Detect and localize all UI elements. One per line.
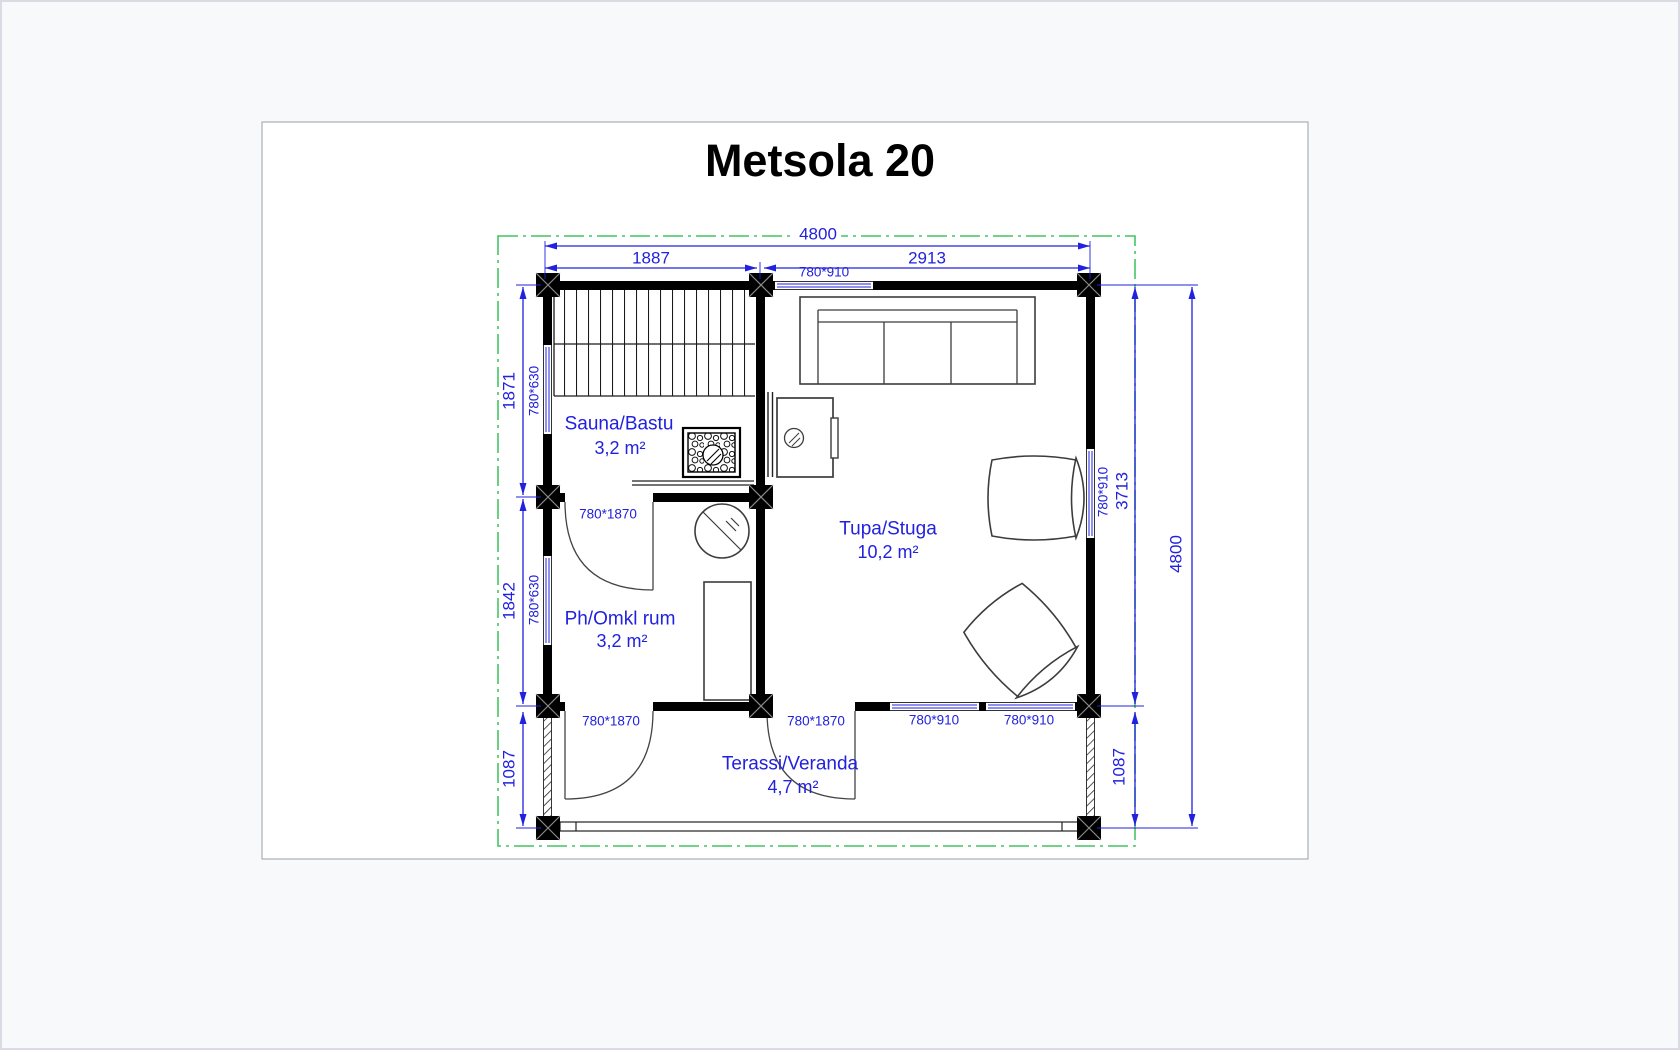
- dim-sauna-depth: 1871: [501, 372, 518, 410]
- dim-terrace-depth-right: 1087: [1111, 748, 1128, 786]
- floor-plan-sheet: Metsola 20 4800 1887 2913 780*910 1871 7…: [0, 0, 1680, 1050]
- label-sauna-door: 780*1870: [579, 507, 637, 521]
- plan-title: Metsola 20: [705, 135, 935, 187]
- label-top-window: 780*910: [799, 265, 849, 279]
- room-area-sauna: 3,2 m²: [594, 439, 645, 457]
- label-left-window-sauna: 780*630: [527, 366, 541, 416]
- label-left-window-dressing: 780*630: [527, 575, 541, 625]
- dim-living-width: 2913: [908, 250, 946, 267]
- dim-overall-width: 4800: [795, 226, 841, 243]
- dim-main-depth: 3713: [1114, 472, 1131, 510]
- room-area-living: 10,2 m²: [857, 543, 918, 561]
- room-name-terrace: Terassi/Veranda: [722, 755, 858, 774]
- label-terrace-window-2: 780*910: [1004, 713, 1054, 727]
- dim-sauna-width: 1887: [632, 250, 670, 267]
- dim-overall-depth: 4800: [1168, 535, 1185, 573]
- dim-dressing-depth: 1842: [501, 582, 518, 620]
- dim-terrace-depth-left: 1087: [501, 750, 518, 788]
- label-terrace-window-1: 780*910: [909, 713, 959, 727]
- room-name-dressing: Ph/Omkl rum: [565, 610, 676, 629]
- label-right-window: 780*910: [1096, 467, 1110, 517]
- room-name-sauna: Sauna/Bastu: [565, 415, 674, 434]
- room-area-terrace: 4,7 m²: [767, 778, 818, 796]
- label-terrace-door-left: 780*1870: [582, 714, 640, 728]
- label-terrace-door-right: 780*1870: [787, 714, 845, 728]
- room-area-dressing: 3,2 m²: [596, 632, 647, 650]
- room-name-living: Tupa/Stuga: [839, 520, 937, 539]
